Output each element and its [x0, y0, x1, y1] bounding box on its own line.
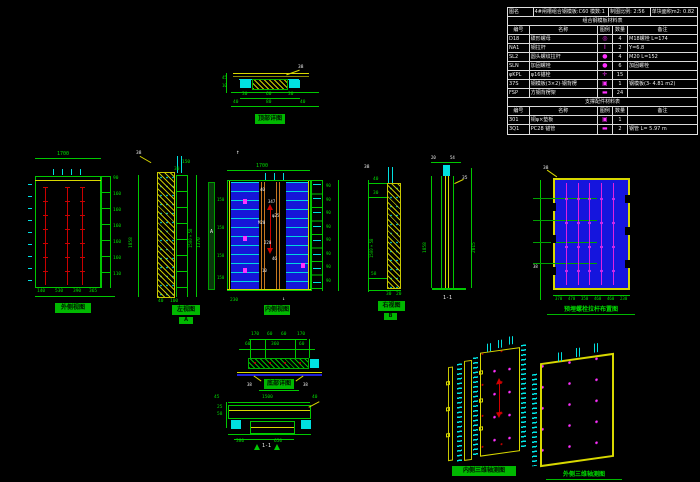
col-header: 名称 — [529, 26, 597, 34]
edge-tick-marks — [28, 184, 32, 284]
cell-symbol: ● — [597, 53, 612, 61]
cyan-clamp-right — [289, 80, 300, 88]
dim-label: 370 — [555, 297, 562, 301]
dim-label: 365 — [89, 290, 97, 295]
leader-line — [296, 376, 304, 382]
anchor-bars — [388, 167, 393, 183]
dimension-line — [35, 296, 115, 297]
table-row: SLN 加固螺栓 ● 6 加固螺栓 — [508, 62, 697, 71]
bolt-square — [479, 426, 483, 431]
blue-plate-line — [237, 374, 322, 376]
north-arrow: ↑ — [236, 150, 240, 156]
dim-label: 90 — [326, 184, 331, 188]
cell-qty: 6 — [612, 62, 627, 70]
dim-label: 1500×58 — [370, 214, 374, 258]
cyan-clamp-left — [240, 80, 251, 88]
tie-plate — [243, 236, 247, 241]
dim-label: 350 — [581, 297, 588, 301]
cell-note: 加固螺栓 — [627, 62, 697, 70]
edge-notch — [551, 235, 556, 243]
tie-plate — [243, 199, 247, 204]
dimension-line — [227, 170, 310, 171]
dim-label: 40 — [300, 101, 305, 106]
yellow-rail — [308, 181, 309, 290]
cell-symbol: ▣ — [597, 80, 612, 88]
cell-qty: 2 — [612, 44, 627, 52]
spring-clamp-column — [473, 357, 478, 458]
waler-line — [276, 182, 277, 289]
dim-label: 30 — [174, 168, 179, 173]
dim-label: 58 — [371, 273, 376, 278]
tie-rod-line — [565, 183, 568, 285]
cell-qty: 15 — [612, 71, 627, 79]
table-row: FSP 方钢背楞架 ▬ 24 — [508, 89, 697, 98]
panel-face — [480, 347, 520, 457]
col-header: 备注 — [627, 107, 697, 115]
tie-plate — [301, 263, 305, 268]
section2-title-row: 支撑配件材料表 — [508, 98, 697, 107]
cell-name: 圆头螺纹拉杆 — [529, 53, 597, 61]
dim-tick — [226, 402, 227, 428]
section1-header-row: 编号 名称 图例 数量 备注 — [508, 26, 697, 35]
cell-qty: 4 — [612, 53, 627, 61]
cell-symbol: Ⅰ — [597, 44, 612, 52]
title-cell: 4#闸槽组合钢模板:C60 模数:1 — [533, 8, 609, 16]
view-label: 左视图 — [172, 305, 200, 315]
red-tie-rod — [80, 187, 85, 285]
bolt-layout-panel: 38 38 370 470 350 460 460 230 预埋螺栓拉杆布置图 — [533, 165, 647, 323]
col-header: 备注 — [627, 26, 697, 34]
leader-line — [140, 156, 152, 163]
cell-note — [627, 71, 697, 79]
view-sublabel: A — [179, 317, 193, 324]
dim-label: 160 — [113, 209, 121, 214]
right-section-view: 38 1500×58 40 30 58 30 20 右视图 B — [356, 150, 414, 322]
annotation: 220 — [264, 241, 271, 245]
title-cell: 图名 — [508, 8, 533, 16]
dim-label: 40 — [158, 300, 163, 305]
view-label: 外侧三维轴测图 — [546, 470, 622, 480]
cell-id: 301 — [508, 116, 529, 124]
edge-tick-marks — [313, 184, 321, 288]
dim-tick — [295, 339, 296, 358]
dim-label: 140 — [37, 290, 45, 295]
red-arrow-down — [496, 412, 502, 419]
red-tie-rod — [65, 187, 70, 285]
dim-label: 1700 — [256, 164, 268, 169]
cell-id: SLN — [508, 62, 529, 70]
leader-tag: 35 — [462, 177, 467, 182]
dim-label: 160 — [113, 257, 121, 262]
cell-symbol: ▬ — [597, 125, 612, 134]
dimension-line — [249, 339, 307, 340]
dimension-line — [138, 175, 139, 297]
yellow-plate-line — [229, 410, 310, 411]
cell-symbol: ▣ — [597, 116, 612, 124]
dim-label: 60 — [299, 343, 304, 348]
dim-label: 230 — [230, 299, 238, 304]
tie-rod-line — [600, 183, 603, 285]
dim-label: 160 — [113, 241, 121, 246]
cell-name: PC28 锚管 — [529, 125, 597, 134]
view-label: 内侧三维轴测图 — [452, 466, 516, 476]
dim-label: 40 — [233, 101, 238, 106]
dim-label: 530 — [55, 290, 63, 295]
dim-label: 2015 — [473, 213, 478, 253]
cell-id: NA1 — [508, 44, 529, 52]
parts-table: 图名 4#闸槽组合钢模板:C60 模数:1 制图比例: 2:56 单块面积m2:… — [507, 7, 698, 135]
formwork-section — [157, 172, 175, 298]
dim-label: 20 — [396, 293, 401, 298]
cell-note: Y=6.8 — [627, 44, 697, 52]
cell-id: φKPL — [508, 71, 529, 79]
section-line — [441, 176, 442, 288]
dim-label: 90 — [326, 238, 331, 242]
table-row: φKPL φ16锚栓 ✛ 15 — [508, 71, 697, 80]
dimension-ladder — [176, 175, 188, 297]
annotation: 347 — [268, 200, 275, 204]
cell-id: 37S — [508, 80, 529, 88]
dim-label: 60 — [281, 333, 286, 338]
annotation: 40 — [260, 188, 265, 192]
col-header: 图例 — [597, 26, 612, 34]
cell-name: 碟形螺母 — [529, 35, 597, 43]
annotation: 10 — [262, 269, 267, 273]
dim-label: 54 — [450, 156, 455, 160]
dimension-line — [431, 162, 461, 163]
edge-notch — [625, 227, 630, 235]
inner-face-elevation: ↑ 1700 A 40 347 φ25 M20 220 46 10 150 15… — [200, 148, 348, 320]
section-title: 支撑配件材料表 — [508, 98, 697, 106]
dim-label: 10 — [222, 84, 227, 88]
leader-line — [547, 170, 557, 178]
dim-label: 90 — [326, 198, 331, 202]
bolt-square — [479, 398, 483, 403]
dim-label: 20 — [431, 156, 436, 160]
dim-label: 1500 — [262, 396, 273, 401]
cell-symbol: ✛ — [597, 71, 612, 79]
spring-clamp-column — [521, 344, 526, 449]
view-sublabel: B — [384, 313, 397, 320]
section-cut-bar — [208, 182, 215, 290]
anchor-bars — [594, 343, 598, 353]
dimension-line — [231, 106, 319, 107]
axo-group — [532, 350, 622, 473]
section-label: 1-1 — [262, 444, 271, 449]
red-arrow-stem — [499, 384, 500, 412]
outer-face-elevation: 1700 90 160 160 160 160 160 110 140 530 … — [25, 150, 133, 318]
cell-symbol: ▬ — [597, 89, 612, 97]
red-arrow-down — [267, 248, 273, 254]
cell-id: SL2 — [508, 53, 529, 61]
hatch-band — [252, 79, 288, 90]
col-header: 图例 — [597, 107, 612, 115]
leader-line — [254, 376, 262, 382]
dim-label: 1858 — [424, 213, 429, 253]
dim-label: 160 — [113, 193, 121, 198]
spring-clamp-column — [532, 374, 537, 467]
cell-id: FSP — [508, 89, 529, 97]
bolt-square — [446, 381, 450, 386]
yellow-rail — [229, 181, 230, 290]
axonometric-inner: 内侧三维轴测图 — [440, 340, 532, 480]
bolt-square — [446, 407, 450, 412]
dimension-line — [228, 402, 310, 403]
top-plate-line — [233, 73, 309, 74]
cell-note: M20 L=152 — [627, 53, 697, 61]
dim-rung — [368, 197, 387, 198]
dim-label: 90 — [326, 279, 331, 283]
dim-label: 1700 — [57, 152, 69, 157]
waler-line — [279, 182, 280, 289]
annotation: 46 — [272, 257, 277, 261]
anchor-bars — [498, 340, 502, 349]
dimension-line — [35, 158, 101, 159]
top-rail-line — [35, 180, 101, 181]
anchor-bars — [558, 352, 562, 362]
view-label: 外侧视图 — [55, 303, 91, 313]
dim-label: 58 — [217, 413, 222, 418]
leader-tag: 38 — [247, 383, 252, 387]
cell-symbol: ● — [597, 62, 612, 70]
dim-label: 100 — [170, 300, 178, 305]
tie-plate — [243, 268, 247, 273]
view-label: 内侧视图 — [264, 305, 290, 315]
baseline — [228, 434, 311, 435]
cell-qty: 2 — [612, 125, 627, 134]
dim-tick — [265, 339, 266, 358]
col-header: 编号 — [508, 107, 529, 115]
edge-notch — [625, 260, 630, 268]
dim-label: 150 — [217, 254, 224, 258]
dim-label: 30 — [386, 293, 391, 298]
cell-name: 铜φ×垫板 — [529, 116, 597, 124]
cyan-head-block — [443, 165, 450, 176]
anchor-bars — [487, 343, 491, 352]
edge-notch — [551, 203, 556, 211]
tie-rod-line — [577, 183, 580, 285]
dim-label: 90 — [326, 265, 331, 269]
bottom-detail-view: 170 60 60 170 60 360 60 38 38 底部详图 — [225, 326, 333, 392]
dim-label: 30 — [288, 93, 293, 98]
bolt-square — [446, 433, 450, 438]
axonometric-outer: 外侧三维轴测图 — [530, 348, 626, 482]
base-plate — [432, 288, 466, 290]
plank-outline — [228, 405, 311, 419]
waler-strip — [464, 360, 472, 461]
bolt-dot — [269, 362, 271, 364]
section-title: 组合钢模板材料表 — [508, 17, 697, 25]
section-line-yellow — [448, 176, 449, 288]
dim-label: 360 — [271, 343, 279, 348]
anchor-bars — [576, 348, 580, 358]
dimension-line — [196, 175, 197, 297]
cell-note: 钢模板(3- 4.81 m2) — [627, 80, 697, 88]
anchor-marks — [265, 173, 289, 180]
dim-label: 390 — [73, 290, 81, 295]
cell-qty: 4 — [612, 35, 627, 43]
title-cell: 制图比例: 2:56 — [608, 8, 650, 16]
dim-label: 160 — [113, 225, 121, 230]
table-row: SL2 圆头螺纹拉杆 ● 4 M20 L=152 — [508, 53, 697, 62]
cell-name: 钢模板(3×2)·钢背楞 — [529, 80, 597, 88]
leader-tag: 38 — [533, 265, 538, 269]
axo-group — [441, 340, 529, 464]
formwork-section — [387, 183, 401, 289]
tie-rod-line — [588, 183, 591, 285]
bolt-dot — [254, 362, 256, 364]
cell-note — [627, 89, 697, 97]
cell-name: 钢拉杆 — [529, 44, 597, 52]
tie-rod-line — [612, 183, 615, 285]
spring-clamp-column — [457, 363, 462, 462]
view-label: 右视图 — [378, 301, 405, 311]
dim-label: 60 — [266, 93, 271, 98]
cell-note: M18螺栓 L=174 — [627, 35, 697, 43]
dimension-line — [471, 168, 472, 288]
dim-label: 30 — [242, 93, 247, 98]
cyan-block — [231, 420, 241, 429]
leader-line — [308, 401, 319, 408]
annotation: φ25 — [272, 214, 279, 218]
bolt-dot — [299, 362, 301, 364]
cell-qty: 24 — [612, 89, 627, 97]
dimension-line — [431, 176, 432, 288]
edge-notch — [551, 267, 556, 275]
table-row: 37S 钢模板(3×2)·钢背楞 ▣ 1 钢模板(3- 4.81 m2) — [508, 80, 697, 89]
dim-label: 30 — [373, 192, 378, 197]
bottom-plan-section: 1500 45 40 25 58 380 650 1-1 — [210, 394, 325, 452]
dim-label: 90 — [326, 225, 331, 229]
col-header: 编号 — [508, 26, 529, 34]
dim-label: 150 — [217, 276, 224, 280]
bolt-square — [479, 370, 483, 375]
dim-label: 40 — [312, 396, 317, 401]
table-row: D18 碟形螺母 ◎ 4 M18螺栓 L=174 — [508, 35, 697, 44]
title-cell: 单块面积m2: 0.82 — [650, 8, 697, 16]
marker-arrow: ↓ — [282, 297, 285, 302]
dim-label: 150 — [217, 198, 224, 202]
baseline — [368, 290, 401, 291]
yellow-plate-line — [237, 372, 322, 373]
view-label: 底部详图 — [264, 379, 294, 389]
dimension-line — [553, 295, 630, 296]
anchor-marks — [53, 169, 81, 175]
table-row: NA1 钢拉杆 Ⅰ 2 Y=6.8 — [508, 44, 697, 53]
cell-note — [627, 116, 697, 124]
cell-id: D18 — [508, 35, 529, 43]
cyan-block — [301, 420, 311, 429]
dim-label: 150 — [217, 226, 224, 230]
left-section-view: 38 1858 1500×58 1370 150 30 40 100 左视图 A — [130, 150, 206, 322]
col-header: 名称 — [529, 107, 597, 115]
section-mark-triangle — [274, 444, 280, 450]
red-tie-rod — [43, 187, 48, 285]
leader-tag: 38 — [364, 166, 369, 171]
dim-rung — [368, 183, 387, 184]
cyan-clamp — [310, 359, 319, 368]
cell-name: 方钢背楞架 — [529, 89, 597, 97]
col-header: 数量 — [612, 26, 627, 34]
cell-note: 钢管 L= 5.97 m — [627, 125, 697, 134]
dim-label: 470 — [568, 297, 575, 301]
dim-label: 45 — [222, 76, 227, 80]
dim-label: 40 — [373, 178, 378, 183]
table-row: 3Q1 PC28 锚管 ▬ 2 钢管 L= 5.97 m — [508, 125, 697, 134]
top-plate-line2 — [233, 76, 309, 77]
cad-canvas[interactable]: 图名 4#闸槽组合钢模板:C60 模数:1 制图比例: 2:56 单块面积m2:… — [0, 0, 700, 482]
narrow-section-view: 20 54 35 1858 2015 1-1 — [424, 143, 482, 310]
dim-label: 380 — [236, 440, 244, 445]
dim-label: 45 — [214, 396, 219, 401]
dim-label: 110 — [113, 273, 121, 278]
panel-face — [540, 353, 614, 467]
bolt-dot — [284, 362, 286, 364]
dim-label: 1500×58 — [189, 204, 193, 248]
dimension-line — [338, 180, 339, 291]
cell-name: φ16锚栓 — [529, 71, 597, 79]
dim-label: 90 — [326, 252, 331, 256]
dim-tick — [250, 339, 251, 358]
view-label: 顶部详图 — [255, 114, 285, 124]
edge-notch — [625, 195, 630, 203]
dimension-ladder — [101, 176, 111, 288]
section1-title-row: 组合钢模板材料表 — [508, 17, 697, 26]
section-mark-triangle — [254, 444, 260, 450]
section-letter: A — [210, 230, 213, 235]
label-underline — [259, 390, 299, 391]
view-label: 预埋螺栓拉杆布置图 — [547, 305, 635, 315]
dim-label: 80 — [266, 101, 271, 106]
dimension-line — [240, 98, 300, 99]
yellow-plate-line — [251, 427, 294, 428]
section-line — [453, 176, 454, 288]
dim-label: 25 — [217, 406, 222, 411]
dim-label: 150 — [182, 161, 190, 166]
table-title-strip: 图名 4#闸槽组合钢模板:C60 模数:1 制图比例: 2:56 单块面积m2:… — [508, 8, 697, 17]
dim-tick — [309, 339, 310, 358]
dim-label: 1858 — [130, 208, 135, 248]
anchor-bars — [509, 336, 513, 345]
dim-label: 460 — [607, 297, 614, 301]
leader-tag: 38 — [303, 383, 308, 387]
top-detail-view: 38 30 60 30 40 80 40 45 10 顶部详图 — [222, 64, 330, 126]
section-line-yellow — [445, 176, 446, 288]
annotation: M20 — [258, 221, 265, 225]
dim-label: 230 — [620, 297, 627, 301]
yellow-rail — [227, 289, 311, 290]
view-label: 1-1 — [443, 296, 452, 301]
col-header: 数量 — [612, 107, 627, 115]
cell-name: 加固螺栓 — [529, 62, 597, 70]
dim-rung — [368, 278, 387, 279]
table-row: 301 铜φ×垫板 ▣ 1 — [508, 116, 697, 125]
dim-label: 170 — [297, 333, 305, 338]
cell-qty: 1 — [612, 80, 627, 88]
blue-form-strip — [286, 182, 308, 289]
dim-label: 60 — [267, 333, 272, 338]
dim-label: 90 — [326, 211, 331, 215]
cell-id: 3Q1 — [508, 125, 529, 134]
dim-label: 460 — [594, 297, 601, 301]
dim-label: 90 — [113, 177, 118, 182]
section2-header-row: 编号 名称 图例 数量 备注 — [508, 107, 697, 116]
dim-label: 170 — [251, 333, 259, 338]
cell-qty: 1 — [612, 116, 627, 124]
cell-symbol: ◎ — [597, 35, 612, 43]
